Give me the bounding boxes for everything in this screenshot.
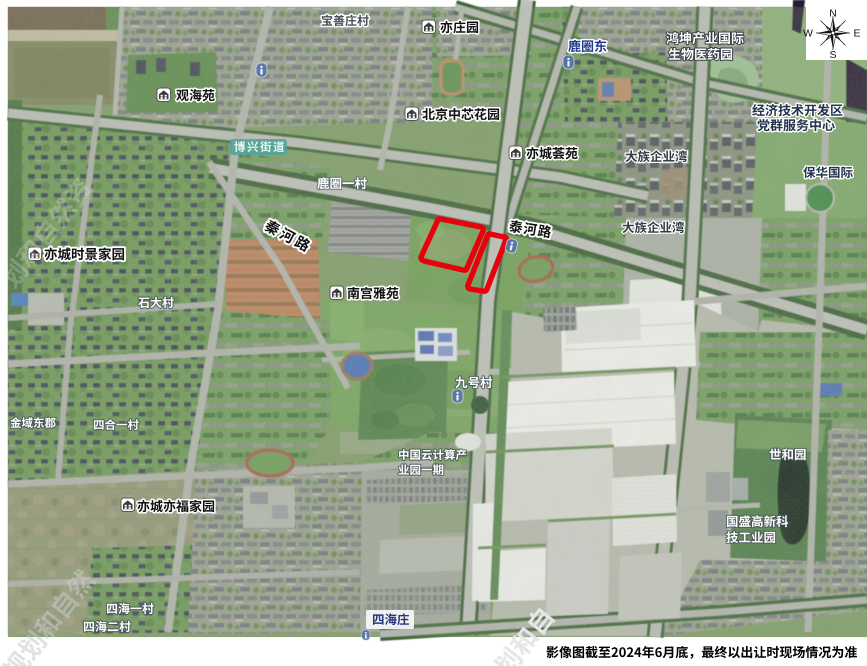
svg-text:N: N bbox=[829, 8, 837, 20]
svg-text:E: E bbox=[853, 28, 860, 40]
svg-text:S: S bbox=[829, 49, 836, 61]
svg-text:W: W bbox=[803, 28, 813, 40]
